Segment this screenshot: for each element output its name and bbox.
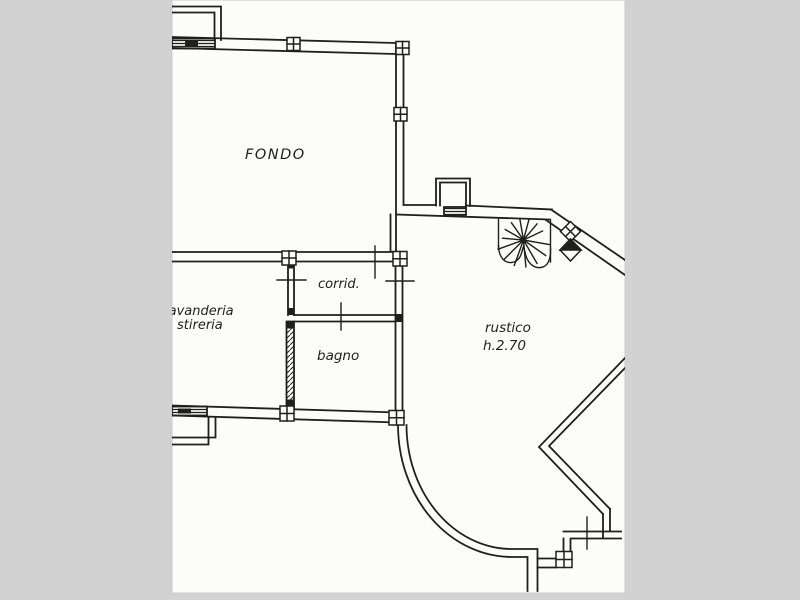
pillar [396, 42, 409, 55]
room-label-bagno: bagno [317, 348, 359, 364]
room-label-rustico: rustico [485, 320, 531, 336]
top-window-blob [185, 41, 198, 47]
room-label-corridoio: corrid. [318, 277, 360, 292]
room-label-lavanderia: lavanderia [165, 304, 234, 319]
room-label-stireria: stireria [177, 318, 223, 333]
plan-paper [172, 0, 625, 593]
pillar [389, 411, 404, 426]
pillar [556, 552, 572, 568]
pillar [394, 108, 407, 122]
pillar [280, 406, 294, 421]
pillar [282, 251, 296, 265]
room-label-fondo: FONDO [245, 147, 306, 163]
bottom-window-blob [178, 409, 191, 414]
bagno-left-hatched-wall [287, 322, 295, 409]
pillar [393, 252, 407, 267]
floor-plan: FONDO lavanderia stireria corrid. bagno … [0, 0, 800, 600]
room-label-rustico-height: h.2.70 [483, 338, 526, 354]
stair-newel [521, 237, 526, 242]
stair-threshold-hatch [444, 207, 466, 215]
pillar [287, 38, 300, 51]
screenshot-stage: FONDO lavanderia stireria corrid. bagno … [0, 0, 800, 600]
